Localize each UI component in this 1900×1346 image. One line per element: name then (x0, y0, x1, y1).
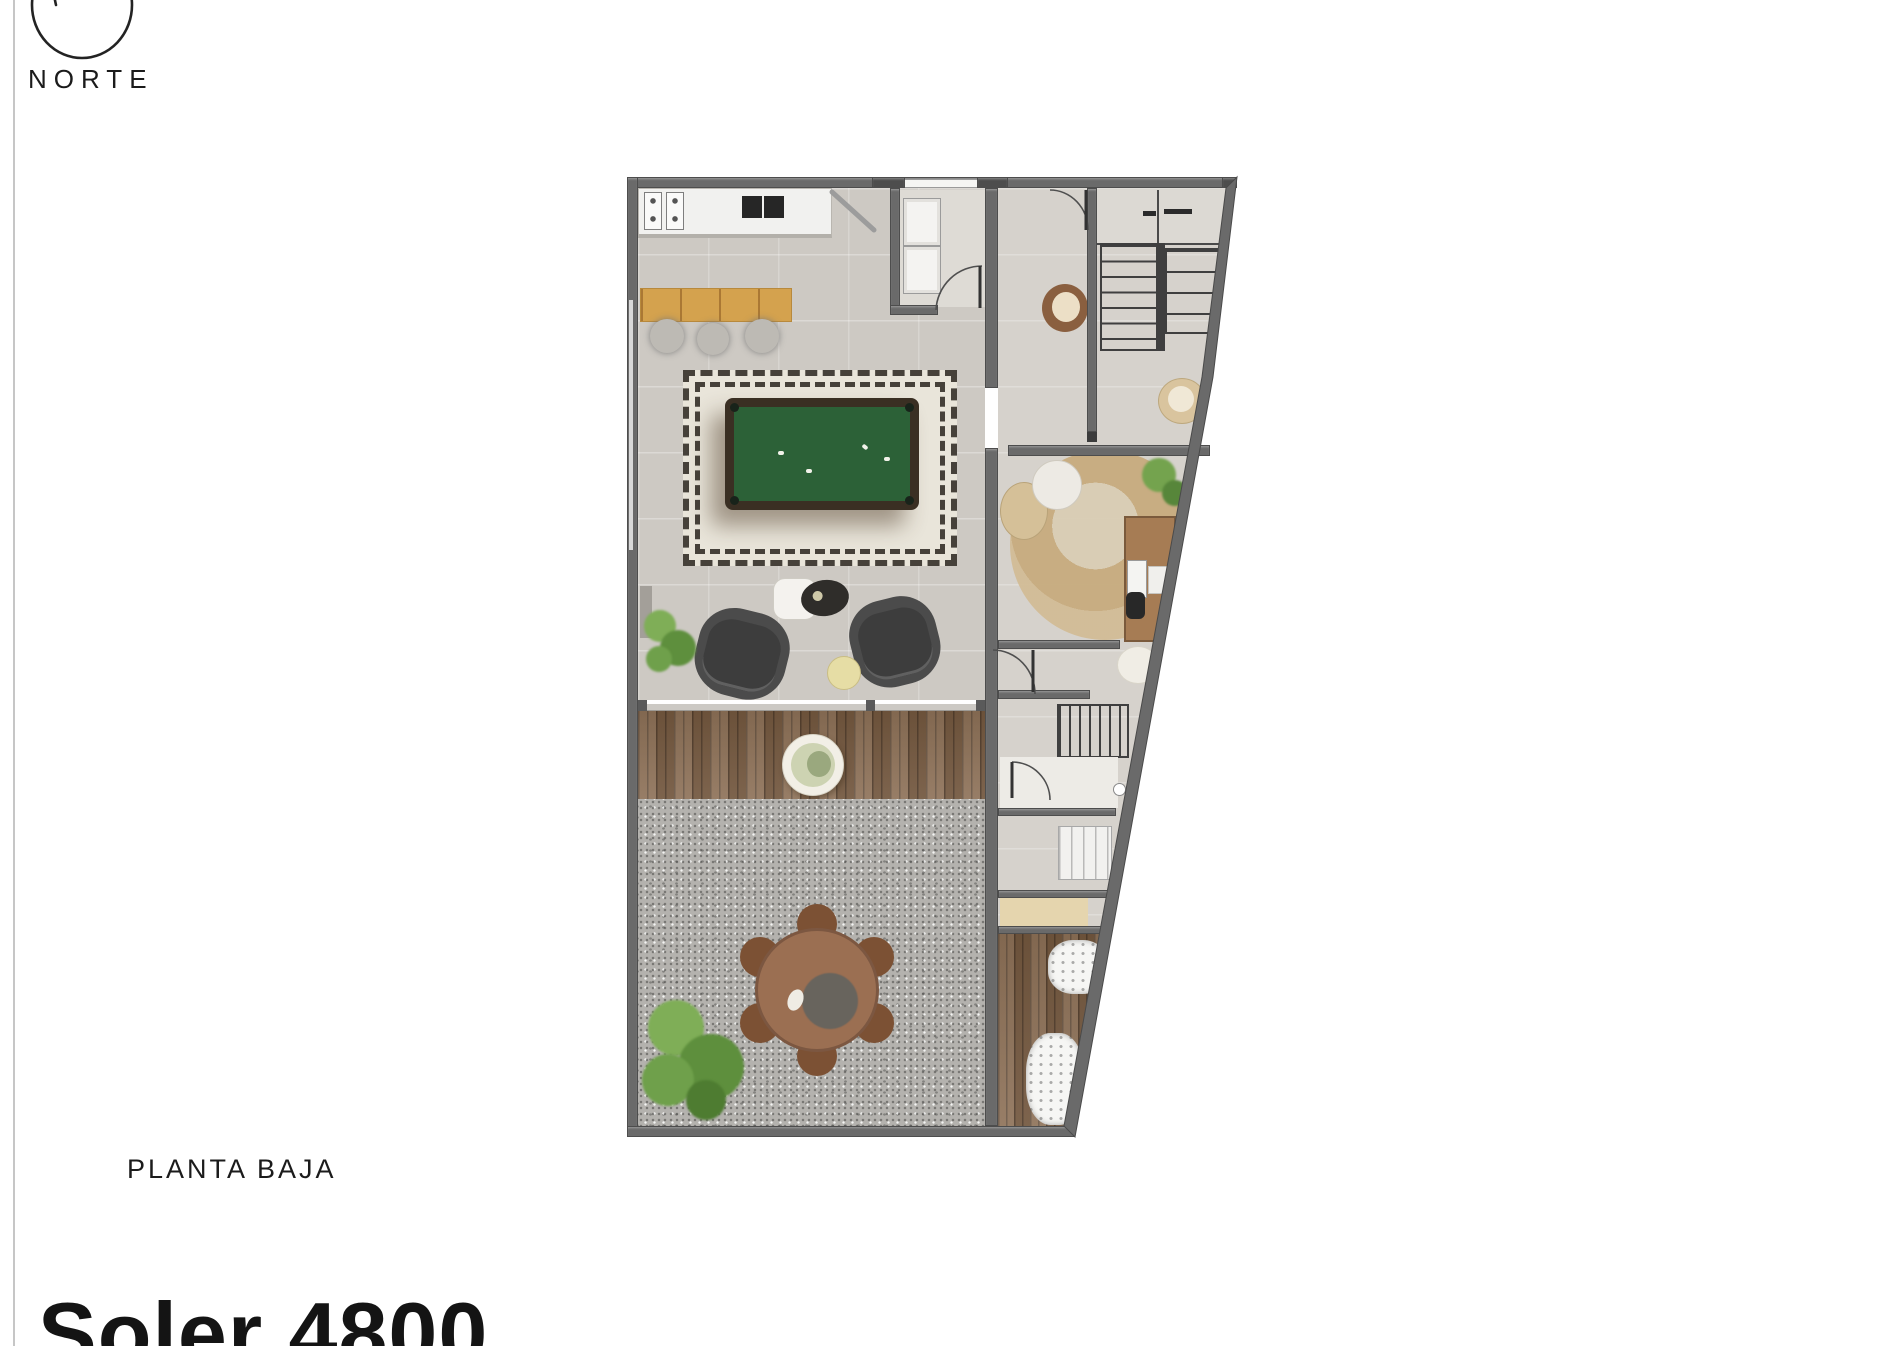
north-label: NORTE (28, 64, 154, 95)
wall-cap (1087, 432, 1097, 442)
bar-stool (650, 319, 684, 353)
bar-stool (745, 319, 779, 353)
wall-stairs (1087, 188, 1097, 432)
chair-cushion (1168, 386, 1194, 412)
kitchen-island-bar (640, 288, 792, 322)
wall-post (977, 177, 1008, 188)
pool-pocket (905, 496, 914, 505)
bathroom-sink-icon (1113, 783, 1126, 796)
armchair-seat (698, 614, 786, 697)
wall-closet (890, 305, 938, 315)
pool-ball (806, 469, 812, 473)
staircase-rail (1157, 243, 1165, 351)
kitchen-appliance-icon (666, 192, 684, 230)
closet-cabinet (903, 246, 941, 294)
stair-closet (1097, 190, 1227, 245)
chair-cushion (1052, 292, 1080, 322)
door-post (976, 700, 985, 711)
pool-pocket (730, 496, 739, 505)
pool-ball (861, 444, 868, 451)
wall-corridor (998, 690, 1090, 699)
service-stairs (1057, 704, 1129, 758)
wall-utility (998, 890, 1108, 898)
page-left-border (13, 0, 15, 1346)
pool-pocket (730, 403, 739, 412)
kitchen-sink-icon (644, 192, 662, 230)
pool-table (725, 398, 919, 510)
window-left (629, 300, 633, 550)
plant-leaves-icon (1162, 480, 1188, 506)
door-post (866, 700, 875, 711)
stove-burner-icon (742, 196, 762, 218)
deck-round-table (782, 734, 844, 796)
table-shadow (807, 751, 831, 777)
pool-ball (884, 457, 890, 461)
closet-handle-icon (1143, 211, 1156, 216)
potted-plant (638, 608, 698, 678)
tray-plant-icon (812, 590, 823, 601)
wall-hall-divider (985, 448, 998, 1126)
garden-bush (638, 988, 778, 1126)
wall-post (872, 177, 905, 188)
side-table (827, 656, 861, 690)
pouf (1117, 646, 1159, 684)
office-curved-chair (1032, 460, 1082, 510)
wall-post (1222, 177, 1237, 188)
shower-fixture (1058, 826, 1112, 880)
closet-divider (1157, 190, 1159, 243)
white-stone (1026, 1033, 1084, 1125)
wall-bottom (627, 1126, 1075, 1137)
wall-closet (890, 188, 900, 315)
white-stone (1048, 940, 1108, 994)
project-title: Soler 4800 (38, 1290, 488, 1346)
desk-chair (1126, 592, 1145, 619)
staircase-right-flight (1165, 248, 1223, 334)
bar-stool (697, 323, 729, 355)
sliding-glass-door (638, 700, 985, 711)
wall-bathroom (998, 808, 1116, 816)
hall-office-zone (998, 188, 1237, 1126)
closet-handle-icon (1164, 209, 1192, 214)
game-room-rug (683, 370, 957, 566)
desk-pad (1148, 566, 1169, 594)
bush-leaves-icon (686, 1080, 726, 1120)
door-post (638, 700, 647, 711)
pool-ball (778, 451, 784, 455)
plan-level-label: PLANTA BAJA (127, 1154, 337, 1185)
table-center (802, 973, 858, 1029)
plant-leaves-icon (646, 646, 672, 672)
wall-office-bottom (998, 640, 1120, 649)
main-living-zone (638, 188, 985, 1126)
closet-cabinet (903, 198, 941, 246)
armchair-seat (853, 602, 937, 684)
hall-armchair (1042, 284, 1088, 332)
bathroom-floor (1000, 757, 1118, 808)
page: NORTE (0, 0, 1900, 1346)
window-top (905, 179, 977, 188)
stove-burner-icon (764, 196, 784, 218)
staircase-left-flight (1100, 243, 1158, 351)
pool-pocket (905, 403, 914, 412)
wall-utility (998, 926, 1104, 934)
wall-office-top (1008, 445, 1210, 456)
landing-chair (1158, 378, 1206, 424)
utility-mat (1000, 898, 1088, 926)
office-plant (1138, 456, 1194, 512)
wall-hall-divider (985, 188, 998, 388)
